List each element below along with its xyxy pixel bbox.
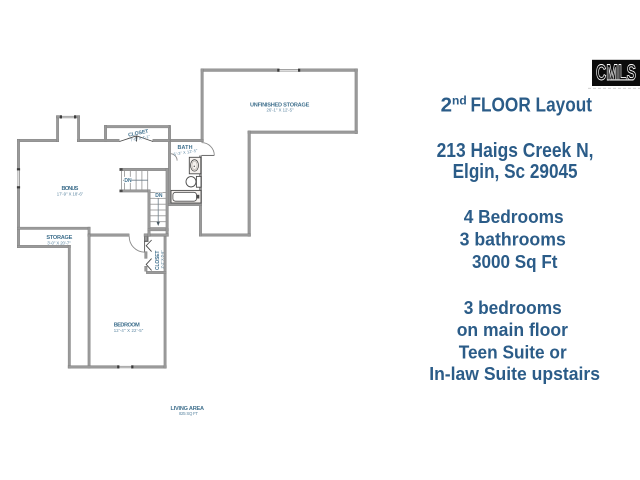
svg-text:Elgin, Sc 29045: Elgin, Sc 29045 <box>453 160 578 183</box>
svg-text:CMLS: CMLS <box>596 60 636 85</box>
svg-text:on main floor: on main floor <box>457 320 568 340</box>
svg-text:In-law Suite upstairs: In-law Suite upstairs <box>429 364 600 384</box>
svg-text:2'-2" X 6'-8": 2'-2" X 6'-8" <box>161 250 165 269</box>
svg-text:nd: nd <box>452 94 467 108</box>
svg-text:825 SQ FT: 825 SQ FT <box>179 411 198 416</box>
svg-text:12'-4" X 22'-5": 12'-4" X 22'-5" <box>114 328 144 333</box>
svg-text:213 Haigs Creek N,: 213 Haigs Creek N, <box>437 139 594 162</box>
svg-text:3'-0" X 20'-7": 3'-0" X 20'-7" <box>47 241 71 246</box>
svg-text:DN: DN <box>155 193 163 199</box>
svg-text:FLOOR Layout: FLOOR Layout <box>471 94 593 117</box>
svg-text:3 bedrooms: 3 bedrooms <box>464 298 562 318</box>
svg-text:2: 2 <box>441 94 452 117</box>
svg-text:DN: DN <box>124 178 132 184</box>
svg-text:17'-9" X 18'-6": 17'-9" X 18'-6" <box>57 192 84 197</box>
svg-text:26'-1" X 12'-5": 26'-1" X 12'-5" <box>267 108 294 113</box>
svg-text:3000 Sq Ft: 3000 Sq Ft <box>472 252 558 272</box>
svg-text:Teen Suite or: Teen Suite or <box>459 342 567 362</box>
svg-text:4 Bedrooms: 4 Bedrooms <box>464 207 564 227</box>
svg-text:3 bathrooms: 3 bathrooms <box>460 230 566 250</box>
